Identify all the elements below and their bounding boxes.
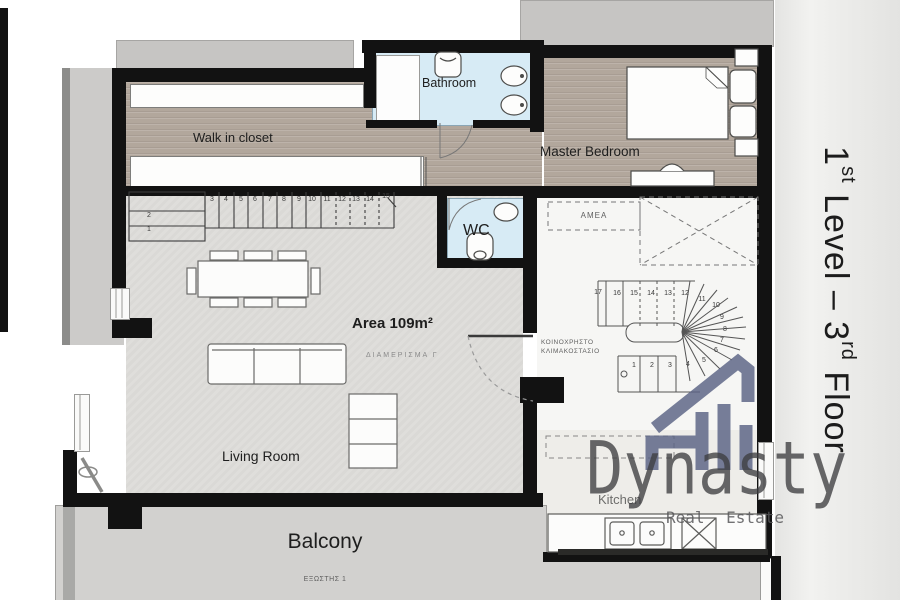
closet-door: [421, 157, 426, 186]
stairwell-label-line2: ΚΛΙΜΑΚΟΣΤΑΣΙΟ: [541, 348, 600, 355]
stair-number: 9: [293, 196, 305, 204]
stair-number: 7: [716, 337, 728, 345]
plan-drawing-layer: [0, 0, 900, 600]
stair-number: 7: [264, 196, 276, 204]
bedroom-dresser: [631, 164, 714, 186]
stair-number: 11: [321, 196, 333, 204]
kitchen-wall-cabinets: [546, 436, 674, 458]
balcony-sub-label: ΕΞΩΣΤΗΣ 1: [245, 576, 405, 583]
stair-number: 10: [710, 302, 722, 310]
stair-number: 17: [592, 289, 604, 297]
bathroom-label: Bathroom: [422, 76, 476, 90]
stair-number: 8: [278, 196, 290, 204]
stair-number: 9: [716, 314, 728, 322]
stair-number: 4: [220, 196, 232, 204]
tv-cabinet: [349, 394, 397, 468]
stair-number: 15: [628, 290, 640, 298]
living-room-label: Living Room: [222, 448, 300, 464]
stair-number: 6: [249, 196, 261, 204]
stairwell-label-line1: ΚΟΙΝΟΧΡΗΣΤΟ: [541, 339, 594, 346]
area-label: Area 109m²: [352, 315, 433, 332]
stair-number: 8: [719, 326, 731, 334]
stair-number: 5: [235, 196, 247, 204]
floor-plan: 1st Level – 3rd Floor: [0, 0, 900, 600]
stair-number: 12: [679, 290, 691, 298]
sofa: [208, 344, 346, 384]
bed: [627, 49, 758, 156]
corner-door: [79, 458, 102, 492]
elevator-shaft: [640, 197, 758, 265]
stairwell-label: ΚΟΙΝΟΧΡΗΣΤΟ ΚΛΙΜΑΚΟΣΤΑΣΙΟ: [541, 338, 600, 356]
kitchen-label: Kitchen: [598, 492, 641, 507]
stair-number: 12: [336, 196, 348, 204]
stair-number: 5: [698, 357, 710, 365]
balcony-label: Balcony: [245, 530, 405, 554]
stair-number: 6: [710, 347, 722, 355]
stair-number: 4: [682, 361, 694, 369]
kitchen-counter: [548, 514, 768, 555]
stair-number: 10: [306, 196, 318, 204]
wc-label: WC: [463, 222, 490, 240]
stair-number: 14: [645, 290, 657, 298]
bathroom-door: [440, 123, 472, 158]
stair-number: 13: [350, 196, 362, 204]
wc-sink-icon: [494, 203, 518, 221]
amea-label: ΑΜΕΑ: [548, 211, 640, 220]
stair-number: 13: [662, 290, 674, 298]
apartment-unit-label: ΔΙΑΜΕΡΙΣΜΑ Γ: [366, 352, 439, 359]
stair-number: 1: [628, 362, 640, 370]
stair-number: 15: [380, 193, 392, 201]
master-bedroom-label: Master Bedroom: [540, 144, 640, 159]
stair-number: 3: [206, 196, 218, 204]
stair-number: 2: [646, 362, 658, 370]
bathroom-toilet-icon: [435, 52, 461, 77]
bathroom-sinks-icon: [501, 66, 527, 115]
stair-number: 2: [143, 212, 155, 220]
walk-in-closet-label: Walk in closet: [193, 130, 273, 145]
stair-number: 3: [664, 362, 676, 370]
dining-table: [187, 251, 320, 307]
entrance-door: [468, 336, 533, 401]
stair-number: 1: [143, 226, 155, 234]
stair-number: 14: [364, 196, 376, 204]
stair-number: 11: [696, 296, 708, 304]
stair-number: 16: [611, 290, 623, 298]
